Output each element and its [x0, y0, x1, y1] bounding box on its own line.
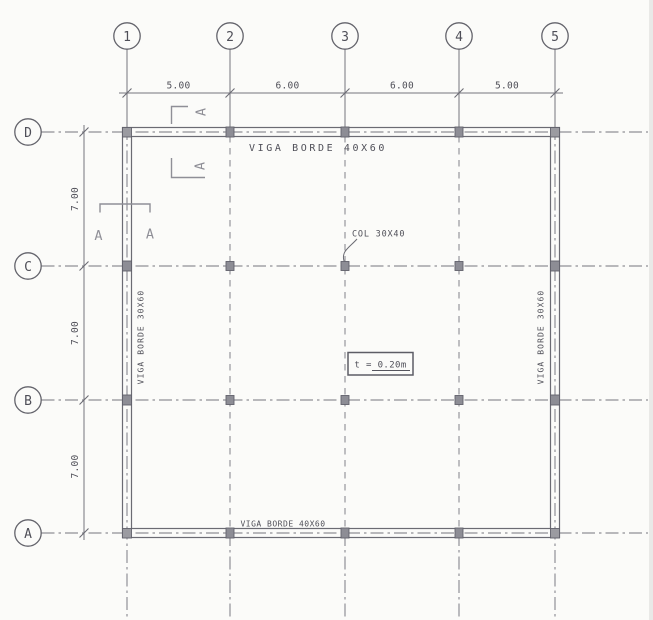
column-marker [455, 127, 463, 137]
dimension-value: 7.00 [70, 321, 81, 345]
axis-label-A: A [24, 527, 32, 542]
column-marker [226, 262, 234, 271]
beam-inner-edge [132, 137, 551, 529]
horizontal-axis-bubbles: D C B A [15, 119, 41, 546]
slab-thickness-label: t = 0.20m [354, 361, 406, 371]
bottom-beam-label: VIGA BORDE 40X60 [240, 520, 325, 529]
axis-label-4: 4 [455, 30, 463, 45]
column-marker [123, 529, 132, 539]
column-marker [551, 261, 560, 271]
section-letter: A [193, 162, 209, 170]
column-marker [226, 528, 234, 538]
axis-label-C: C [24, 260, 32, 275]
dimension-value: 7.00 [70, 187, 81, 211]
right-beam-label: VIGA BORDE 30X60 [537, 290, 546, 385]
top-dimension-line: 5.00 6.00 6.00 5.00 [119, 81, 563, 98]
plan-canvas: 5.00 6.00 6.00 5.00 7.00 7.00 7.00 1 2 3… [0, 0, 653, 620]
top-beam-label: VIGA BORDE 40X60 [249, 143, 387, 154]
dimension-value: 5.00 [495, 81, 519, 92]
dimension-value: 6.00 [275, 81, 299, 92]
section-cut-flag [172, 107, 189, 125]
slab-thickness-note: t = 0.20m [348, 353, 413, 376]
axis-label-D: D [24, 126, 32, 141]
section-cut-flag [100, 204, 150, 213]
section-letter: A [146, 227, 154, 243]
section-mark-top: A A [172, 107, 210, 178]
section-letter: A [94, 228, 102, 244]
column-marker [455, 396, 463, 405]
perimeter-beams [123, 128, 560, 538]
column-marker [551, 128, 560, 138]
axis-label-3: 3 [341, 30, 349, 45]
axis-label-2: 2 [226, 30, 234, 45]
column-marker [123, 395, 132, 405]
column-marker [551, 529, 560, 539]
beam-annotations: VIGA BORDE 40X60 VIGA BORDE 40X60 VIGA B… [137, 143, 546, 529]
section-mark-left: A A [94, 204, 154, 244]
columns [123, 127, 560, 538]
column-marker [226, 127, 234, 137]
column-marker [226, 396, 234, 405]
column-marker [123, 261, 132, 271]
dimension-value: 5.00 [166, 81, 190, 92]
column-marker [455, 262, 463, 271]
axis-label-B: B [24, 394, 32, 409]
column-marker [123, 128, 132, 138]
column-marker [341, 127, 349, 137]
dimension-value: 7.00 [70, 454, 81, 478]
column-marker [551, 395, 560, 405]
dimension-value: 6.00 [390, 81, 414, 92]
left-beam-label: VIGA BORDE 30X60 [137, 290, 146, 385]
axis-label-1: 1 [123, 30, 131, 45]
left-dimension-line: 7.00 7.00 7.00 [70, 125, 89, 540]
column-marker [341, 528, 349, 538]
vertical-axis-bubbles: 1 2 3 4 5 [114, 23, 568, 49]
column-marker [341, 262, 349, 271]
section-letter: A [194, 108, 210, 116]
axis-label-5: 5 [551, 30, 559, 45]
column-marker [455, 528, 463, 538]
structural-floor-plan: 5.00 6.00 6.00 5.00 7.00 7.00 7.00 1 2 3… [0, 0, 653, 620]
beam-outer-edge [123, 128, 560, 538]
scan-edge-shadow [649, 0, 653, 620]
column-callout: COL 30X40 [343, 230, 405, 262]
column-callout-label: COL 30X40 [352, 230, 405, 240]
column-marker [341, 396, 349, 405]
